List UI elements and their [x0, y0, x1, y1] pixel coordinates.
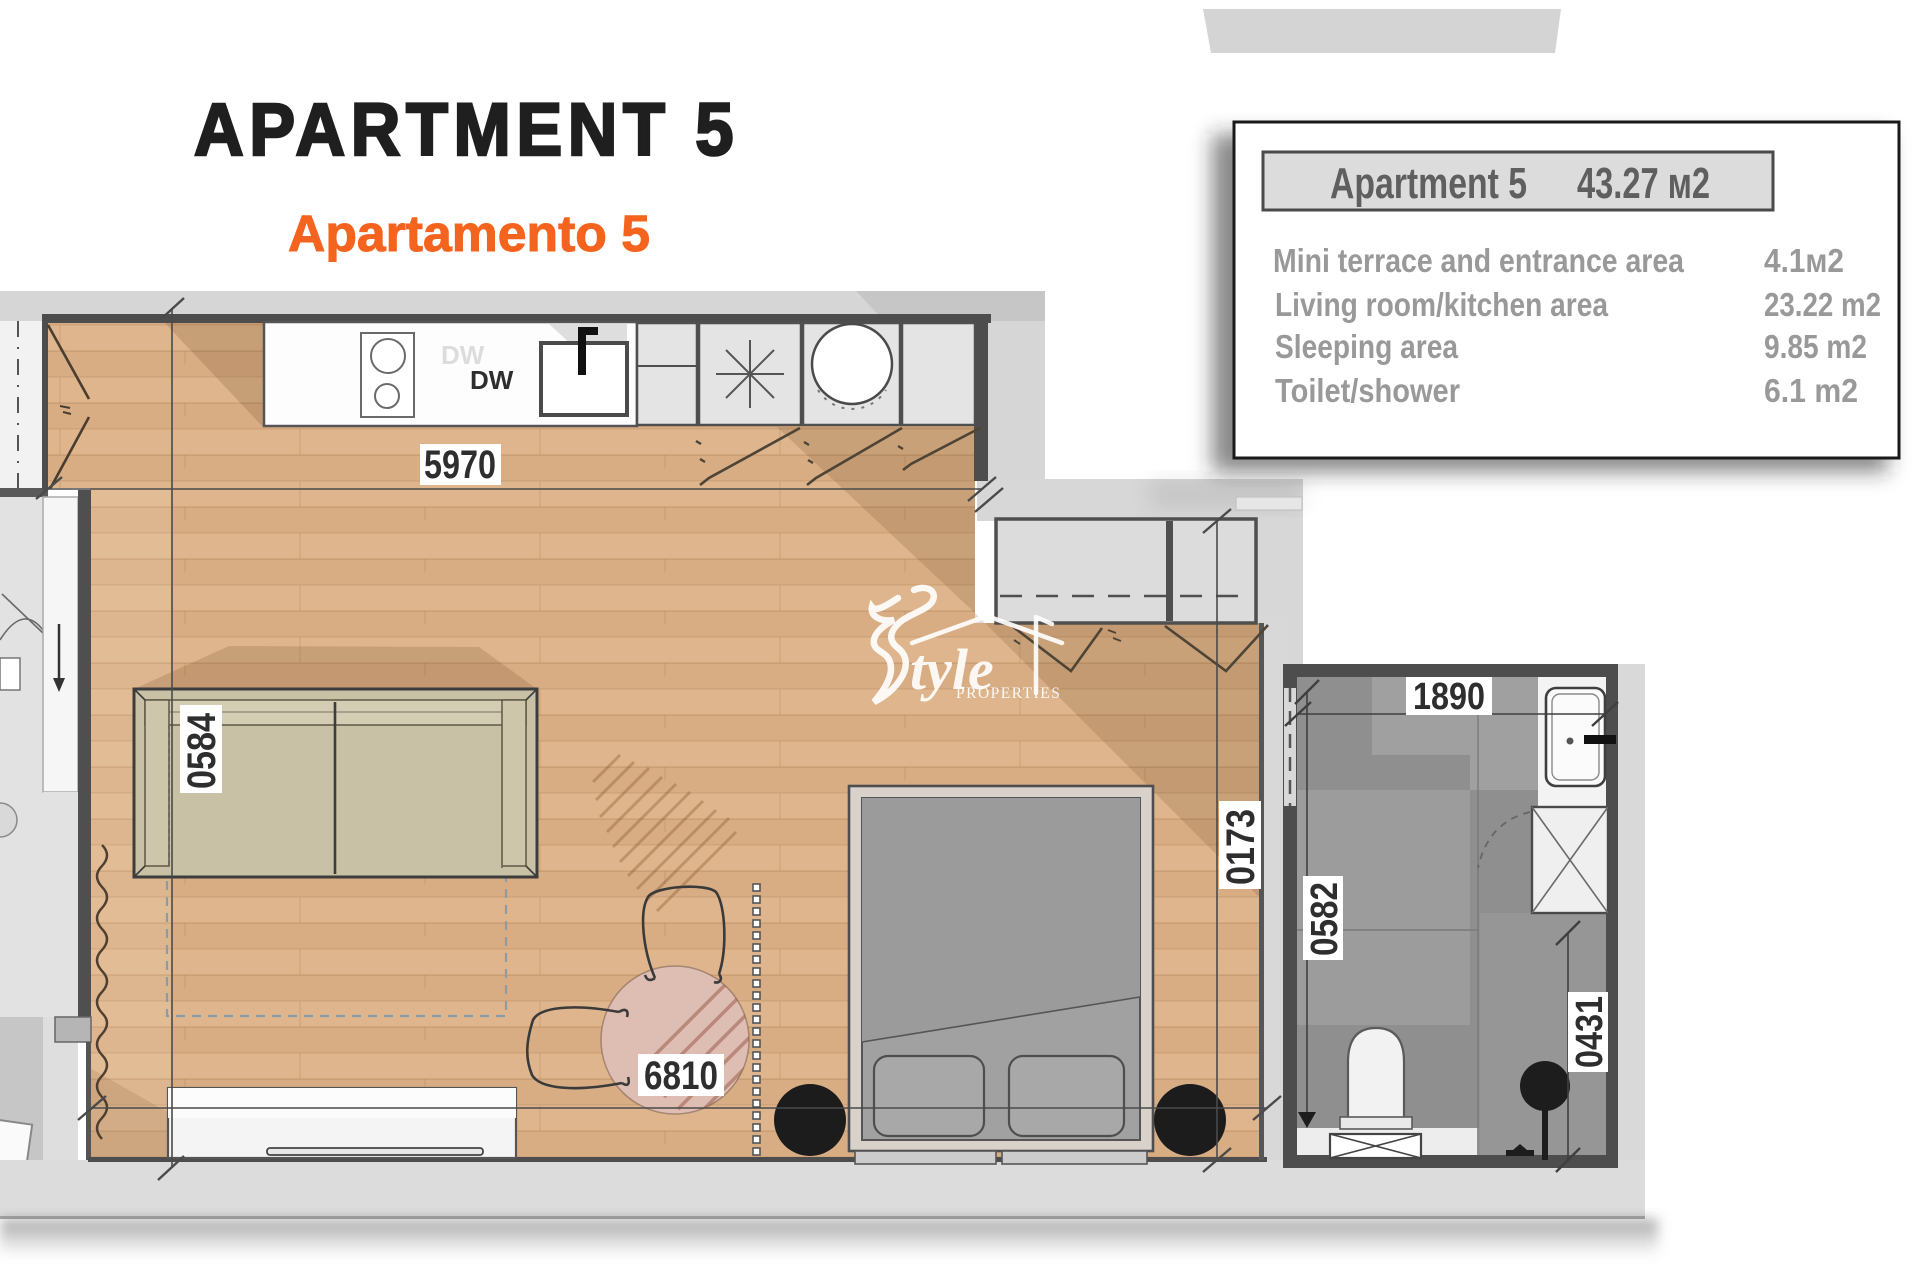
- svg-text:APARTMENT 5: APARTMENT 5: [194, 88, 739, 171]
- svg-text:1890: 1890: [1413, 676, 1485, 718]
- svg-text:Living room/kitchen area: Living room/kitchen area: [1275, 286, 1609, 323]
- svg-text:43.27 м2: 43.27 м2: [1577, 159, 1710, 208]
- svg-text:Toilet/shower: Toilet/shower: [1275, 372, 1460, 409]
- svg-text:0173: 0173: [1219, 809, 1263, 885]
- svg-text:Sleeping area: Sleeping area: [1275, 328, 1459, 365]
- svg-text:Apartment 5: Apartment 5: [1330, 159, 1527, 208]
- svg-text:0584: 0584: [180, 712, 224, 789]
- svg-text:6810: 6810: [644, 1054, 718, 1098]
- svg-text:23.22 m2: 23.22 m2: [1764, 286, 1881, 323]
- svg-text:0582: 0582: [1304, 882, 1346, 956]
- svg-text:9.85 m2: 9.85 m2: [1764, 328, 1867, 365]
- svg-text:4.1м2: 4.1м2: [1764, 242, 1844, 279]
- svg-text:0431: 0431: [1569, 996, 1611, 1068]
- svg-text:Mini terrace and entrance area: Mini terrace and entrance area: [1273, 242, 1685, 279]
- svg-text:5970: 5970: [424, 443, 496, 487]
- svg-text:6.1 m2: 6.1 m2: [1764, 372, 1858, 409]
- svg-text:PROPERTIES: PROPERTIES: [956, 685, 1061, 702]
- svg-text:Apartamento 5: Apartamento 5: [288, 205, 650, 262]
- svg-text:DW: DW: [470, 365, 514, 395]
